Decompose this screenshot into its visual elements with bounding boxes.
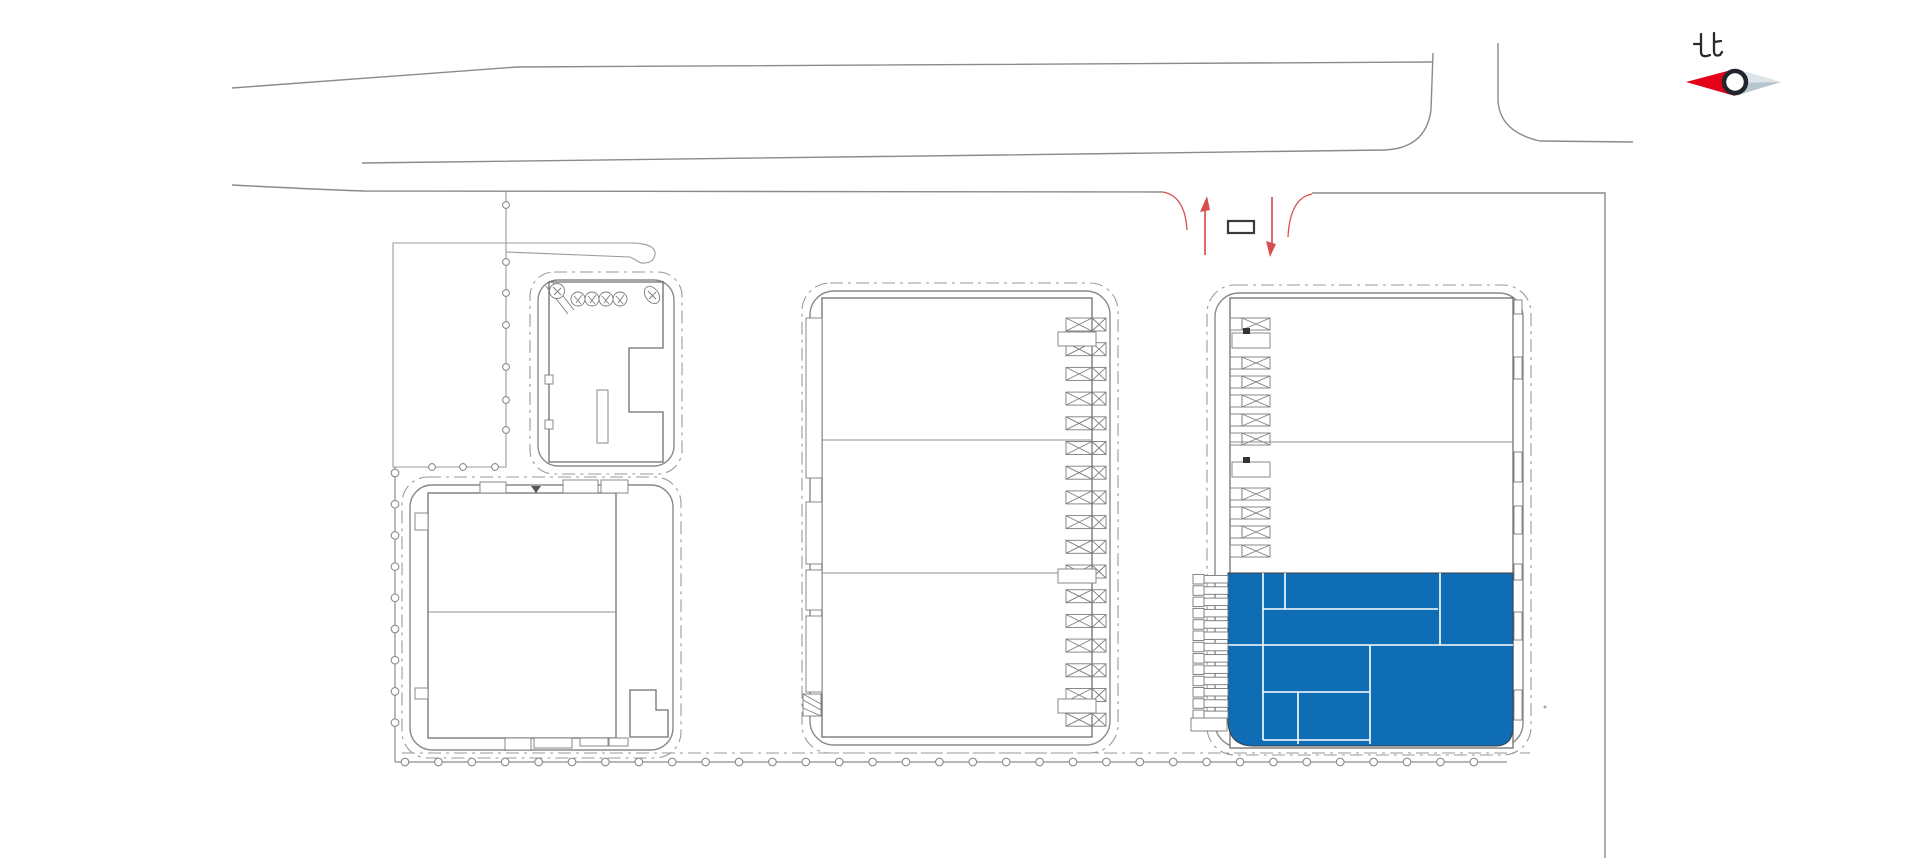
- building-b-west-stub-1: [415, 513, 428, 530]
- compass-hub: [1724, 71, 1746, 93]
- canopy-south-3: [580, 738, 608, 746]
- canopy-north-1: [480, 482, 506, 493]
- building-b: [428, 493, 616, 738]
- parcel-outline: [393, 243, 506, 467]
- road-top-edge: [232, 62, 1433, 88]
- canopy-south-1: [505, 738, 531, 750]
- building-b-west-stub-2: [415, 688, 428, 699]
- building-2-west-strip-3: [806, 570, 822, 610]
- entrance-curb-west: [1163, 192, 1187, 230]
- building-a-notch-1: [545, 375, 553, 384]
- compound-b: [402, 477, 681, 758]
- canopy-north-2: [563, 480, 598, 493]
- exit-arrow-head-icon: [1266, 241, 1276, 257]
- boundary-north-west: [232, 185, 1163, 192]
- road-network: [232, 43, 1633, 163]
- compound-2: [802, 283, 1118, 753]
- building-b-annex: [630, 690, 668, 737]
- highlighted-building[interactable]: [1228, 573, 1513, 746]
- dock-fingers: [1193, 575, 1228, 720]
- building-2: [822, 298, 1092, 737]
- side-street-east-edge: [1498, 43, 1633, 142]
- building-3-east-stubs: [1514, 300, 1522, 720]
- north-compass-icon: 北: [1686, 33, 1781, 96]
- gate-house: [1228, 221, 1254, 233]
- dock-finger-bar: [1191, 718, 1227, 731]
- entry-marker-icon: [531, 486, 541, 493]
- road-bottom-edge: [362, 53, 1433, 163]
- building-2-west-strip-2: [806, 502, 822, 564]
- dock-ramp-1: [1058, 332, 1096, 346]
- compound-a: [530, 272, 682, 474]
- stray-dot: [1544, 706, 1547, 709]
- building-a-notch-2: [545, 420, 553, 429]
- path-hook: [393, 243, 655, 263]
- canopy-north-3: [601, 480, 628, 493]
- entry-arrow-head-icon: [1200, 196, 1210, 212]
- dock-ramp-3: [1058, 699, 1096, 713]
- canopy-south-4: [609, 738, 628, 746]
- hatched-box: [803, 694, 821, 716]
- north-label: 北: [1692, 33, 1719, 64]
- building-2-west-strip-1: [806, 318, 822, 478]
- site-plan-canvas: 北: [0, 0, 1920, 858]
- building-a-inner-shaft: [597, 390, 608, 443]
- building-2-west-strip-4: [806, 616, 822, 692]
- entrance-curb-east: [1288, 194, 1312, 237]
- canopy-south-2: [534, 738, 572, 748]
- dock-ramp-2: [1058, 569, 1096, 583]
